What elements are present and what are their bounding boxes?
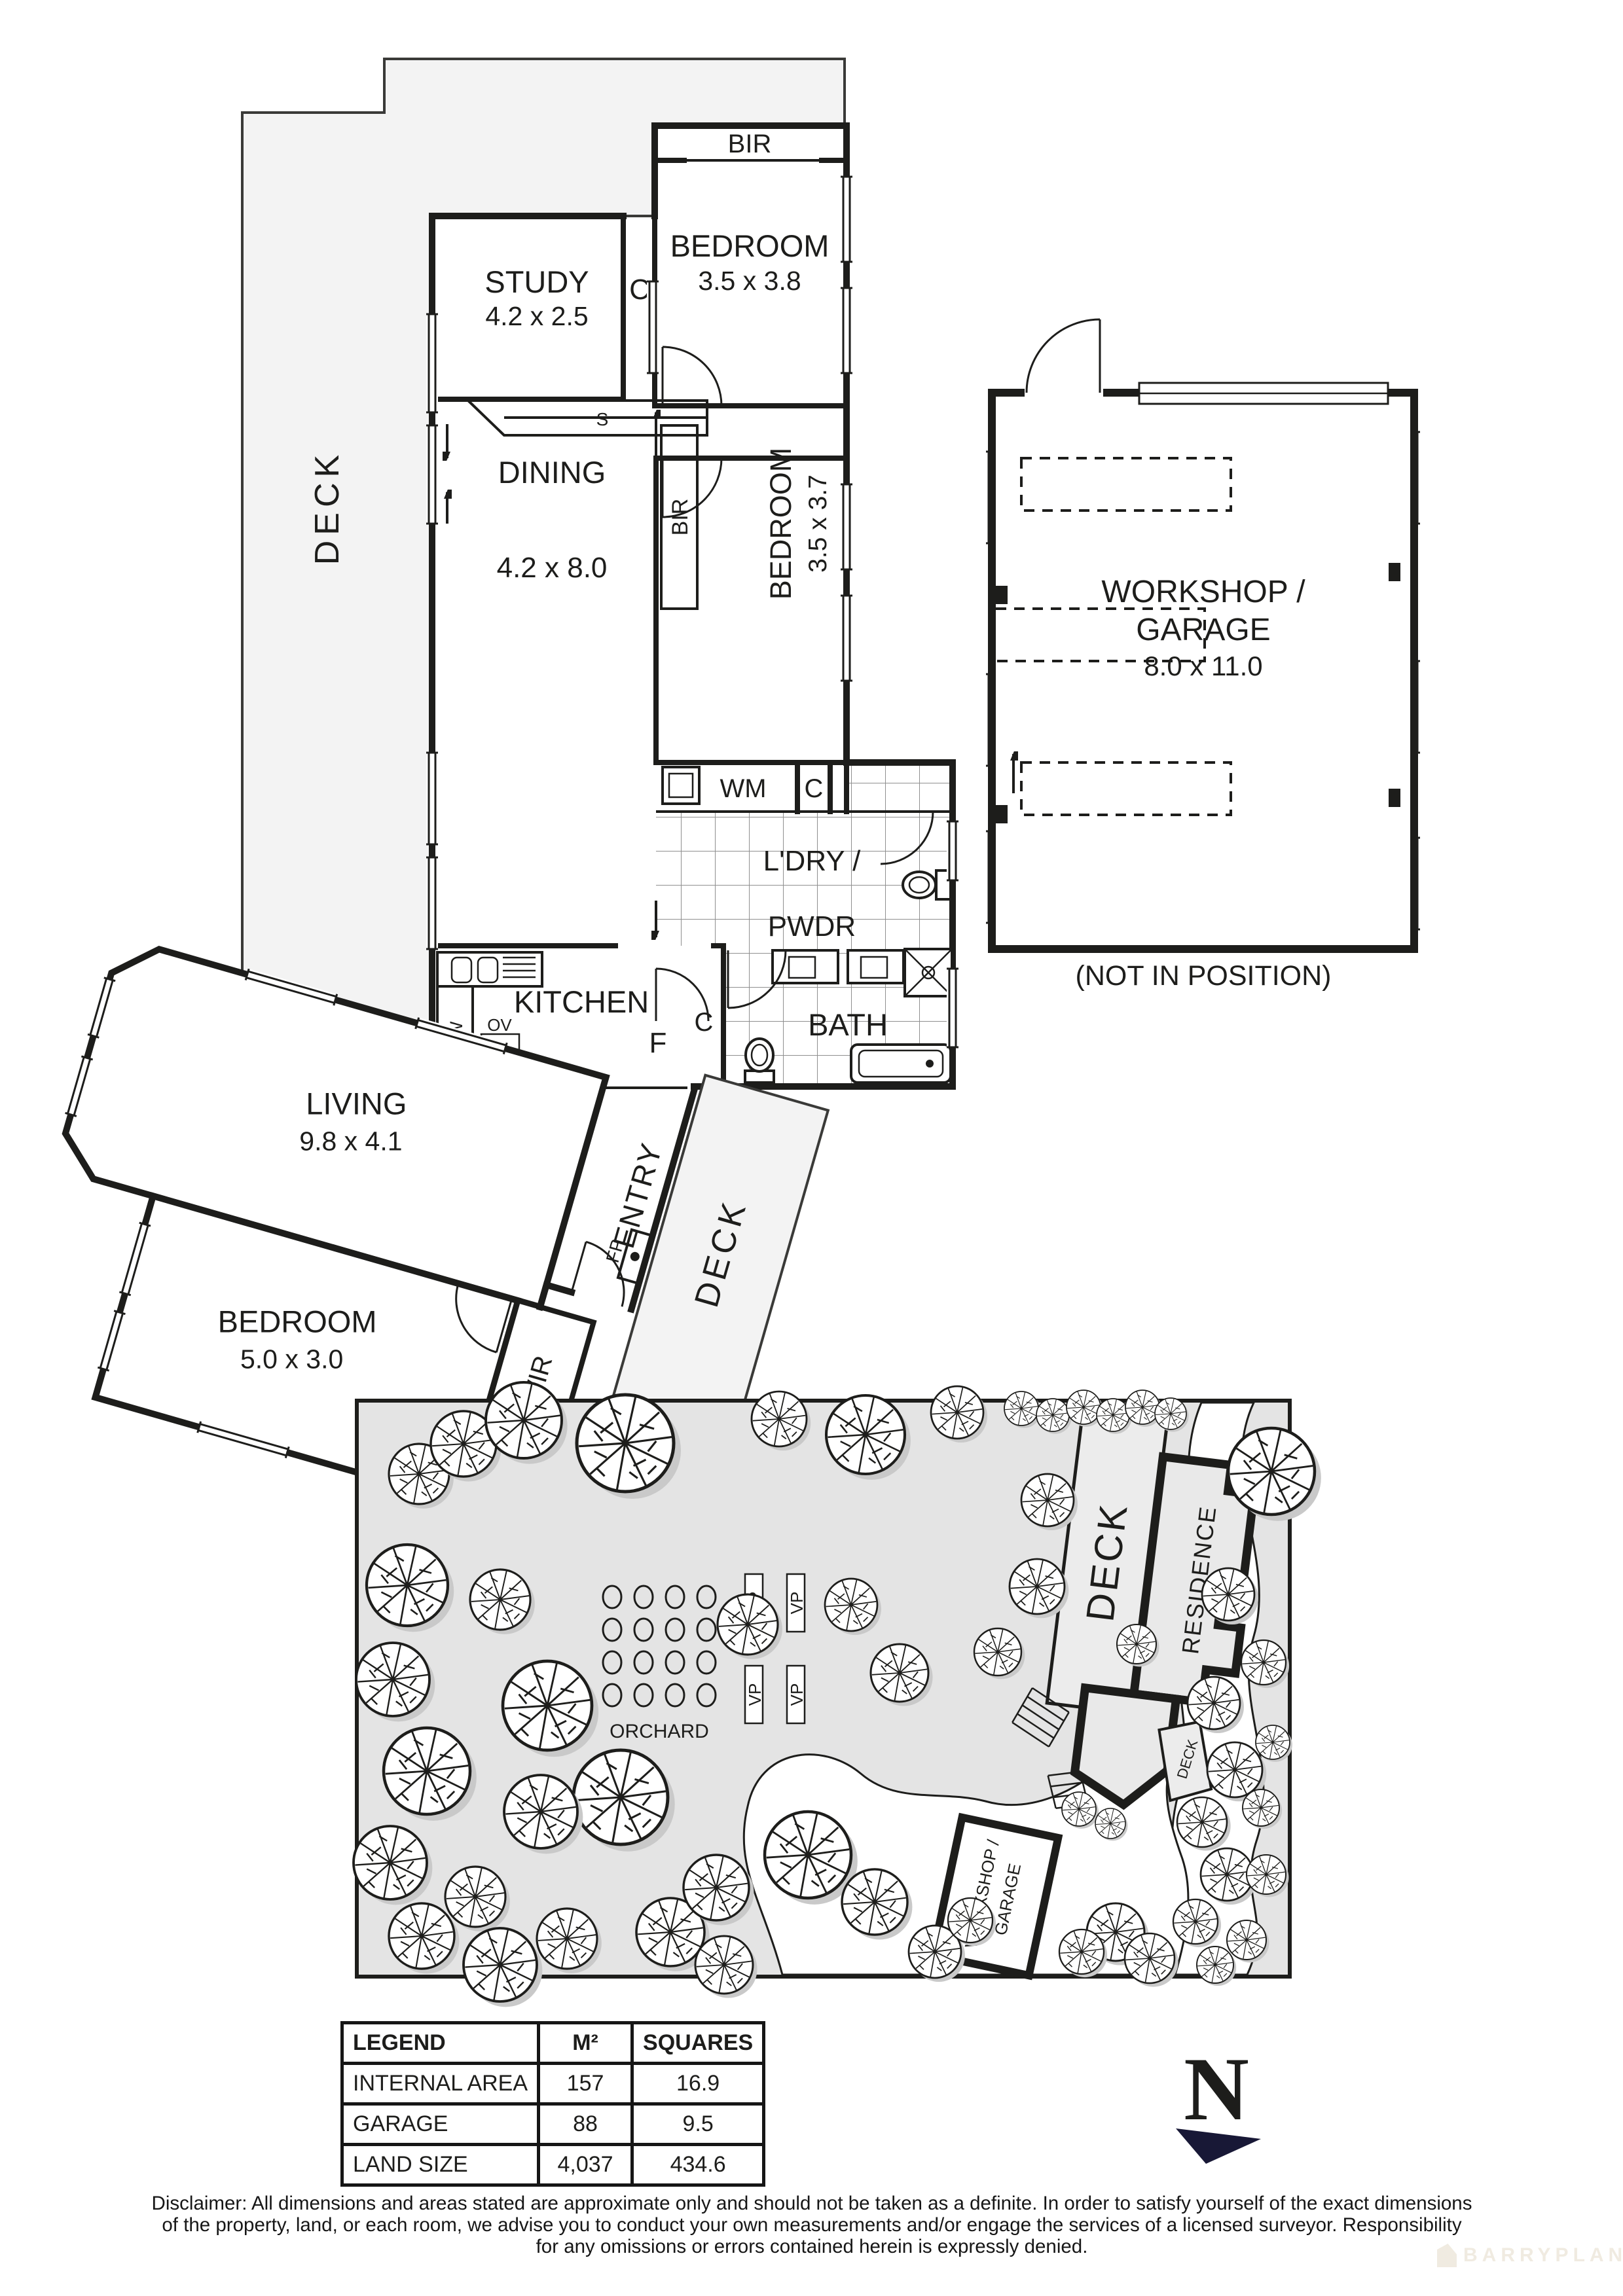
vp-label: VP <box>745 1683 765 1706</box>
wm-label: WM <box>720 774 766 803</box>
workshop-plan: WORKSHOP / GARAGE 8.0 x 11.0 (NOT IN POS… <box>992 319 1414 992</box>
study-dims: 4.2 x 2.5 <box>485 301 588 331</box>
orchard-tree-icon <box>666 1619 684 1641</box>
workshop-dims: 8.0 x 11.0 <box>1144 651 1262 681</box>
bir-top-label: BIR <box>728 130 772 158</box>
legend-table: LEGEND M² SQUARES INTERNAL AREA 157 16.9… <box>340 2021 765 2187</box>
orchard-tree-icon <box>666 1684 684 1706</box>
orchard-tree-icon <box>634 1684 653 1706</box>
legend-m2: 88 <box>539 2104 632 2145</box>
window-icon <box>947 821 958 880</box>
dining-dims: 4.2 x 8.0 <box>497 552 608 584</box>
bath-label: BATH <box>808 1007 888 1042</box>
living-dims: 9.8 x 4.1 <box>299 1126 402 1156</box>
bedroom2-dims: 3.5 x 3.7 <box>804 475 832 573</box>
window-icon <box>426 425 438 524</box>
fridge-label: F <box>649 1027 667 1059</box>
workshop-label-2: GARAGE <box>1136 613 1270 647</box>
legend-squares: 16.9 <box>632 2064 764 2104</box>
living-label: LIVING <box>306 1086 407 1121</box>
ov-label: OV <box>487 1015 512 1035</box>
legend-row-garage: GARAGE 88 9.5 <box>342 2104 764 2145</box>
bedroom3-label: BEDROOM <box>218 1304 377 1339</box>
c-kitchen-label: C <box>695 1008 714 1037</box>
north-label: N <box>1184 2039 1249 2139</box>
orchard-tree-icon <box>666 1586 684 1608</box>
legend-row-land: LAND SIZE 4,037 434.6 <box>342 2145 764 2185</box>
window-icon <box>947 969 958 1047</box>
watermark: BARRYPLANT <box>1437 2244 1623 2267</box>
disclaimer: Disclaimer: All dimensions and areas sta… <box>33 2193 1591 2257</box>
legend-title: LEGEND <box>342 2023 539 2064</box>
disclaimer-line: of the property, land, or each room, we … <box>33 2214 1591 2236</box>
floorplan-page: DECK S BIR <box>0 0 1623 2296</box>
workshop-label-1: WORKSHOP / <box>1101 575 1305 609</box>
legend-row-internal: INTERNAL AREA 157 16.9 <box>342 2064 764 2104</box>
watermark-text: BARRYPLANT <box>1463 2244 1623 2267</box>
orchard-tree-icon <box>603 1586 621 1608</box>
orchard-tree-icon <box>634 1651 653 1674</box>
deck-label: DECK <box>308 450 346 565</box>
watermark-logo-icon <box>1437 2244 1457 2267</box>
laundry-label-2: PWDR <box>768 910 856 942</box>
orchard-tree-icon <box>697 1651 716 1674</box>
disclaimer-line: for any omissions or errors contained he… <box>33 2236 1591 2257</box>
window-icon <box>426 857 438 949</box>
orchard-tree-icon <box>603 1651 621 1674</box>
vp-label: VP <box>787 1683 807 1706</box>
legend-header-row: LEGEND M² SQUARES <box>342 2023 764 2064</box>
bedroom1-dims: 3.5 x 3.8 <box>698 266 801 296</box>
orchard-tree-icon <box>603 1619 621 1641</box>
dining-label: DINING <box>498 455 606 490</box>
laundry-label-1: L'DRY / <box>763 845 861 877</box>
legend-label: INTERNAL AREA <box>342 2064 539 2104</box>
orchard-tree-icon <box>697 1619 716 1641</box>
orchard-label: ORCHARD <box>610 1721 709 1742</box>
orchard-tree-icon <box>634 1619 653 1641</box>
window-icon <box>841 484 852 569</box>
site-plan: DECK RESIDENCE DECK WORKSHOP / GARAGE OR… <box>354 1382 1321 2007</box>
north-arrow: N <box>1176 2039 1261 2164</box>
legend-m2: 157 <box>539 2064 632 2104</box>
legend-col-squares: SQUARES <box>632 2023 764 2064</box>
window-icon <box>841 596 852 681</box>
shelf-label: S <box>596 409 609 429</box>
legend-squares: 9.5 <box>632 2104 764 2145</box>
study-label: STUDY <box>484 264 589 299</box>
orchard-tree-icon <box>697 1586 716 1608</box>
legend-label: GARAGE <box>342 2104 539 2145</box>
orchard-tree-icon <box>666 1651 684 1674</box>
legend-label: LAND SIZE <box>342 2145 539 2185</box>
legend-col-m2: M² <box>539 2023 632 2064</box>
orchard-tree-icon <box>603 1684 621 1706</box>
window-icon <box>426 314 438 412</box>
bedroom3-dims: 5.0 x 3.0 <box>240 1344 343 1374</box>
vp-label: VP <box>787 1592 807 1615</box>
window-icon <box>841 288 852 373</box>
legend-m2: 4,037 <box>539 2145 632 2185</box>
bedroom2-label: BEDROOM <box>764 448 797 600</box>
disclaimer-line: Disclaimer: All dimensions and areas sta… <box>33 2193 1591 2214</box>
bedroom1-label: BEDROOM <box>670 228 830 263</box>
legend-squares: 434.6 <box>632 2145 764 2185</box>
floorplan-canvas: DECK S BIR <box>0 0 1623 2296</box>
window-icon <box>647 281 659 373</box>
orchard-tree-icon <box>697 1684 716 1706</box>
window-icon <box>841 177 852 262</box>
c-laundry-label: C <box>805 774 824 803</box>
window-icon <box>426 753 438 844</box>
workshop-caption: (NOT IN POSITION) <box>1076 960 1332 992</box>
kitchen-label: KITCHEN <box>514 984 649 1019</box>
orchard-tree-icon <box>634 1586 653 1608</box>
